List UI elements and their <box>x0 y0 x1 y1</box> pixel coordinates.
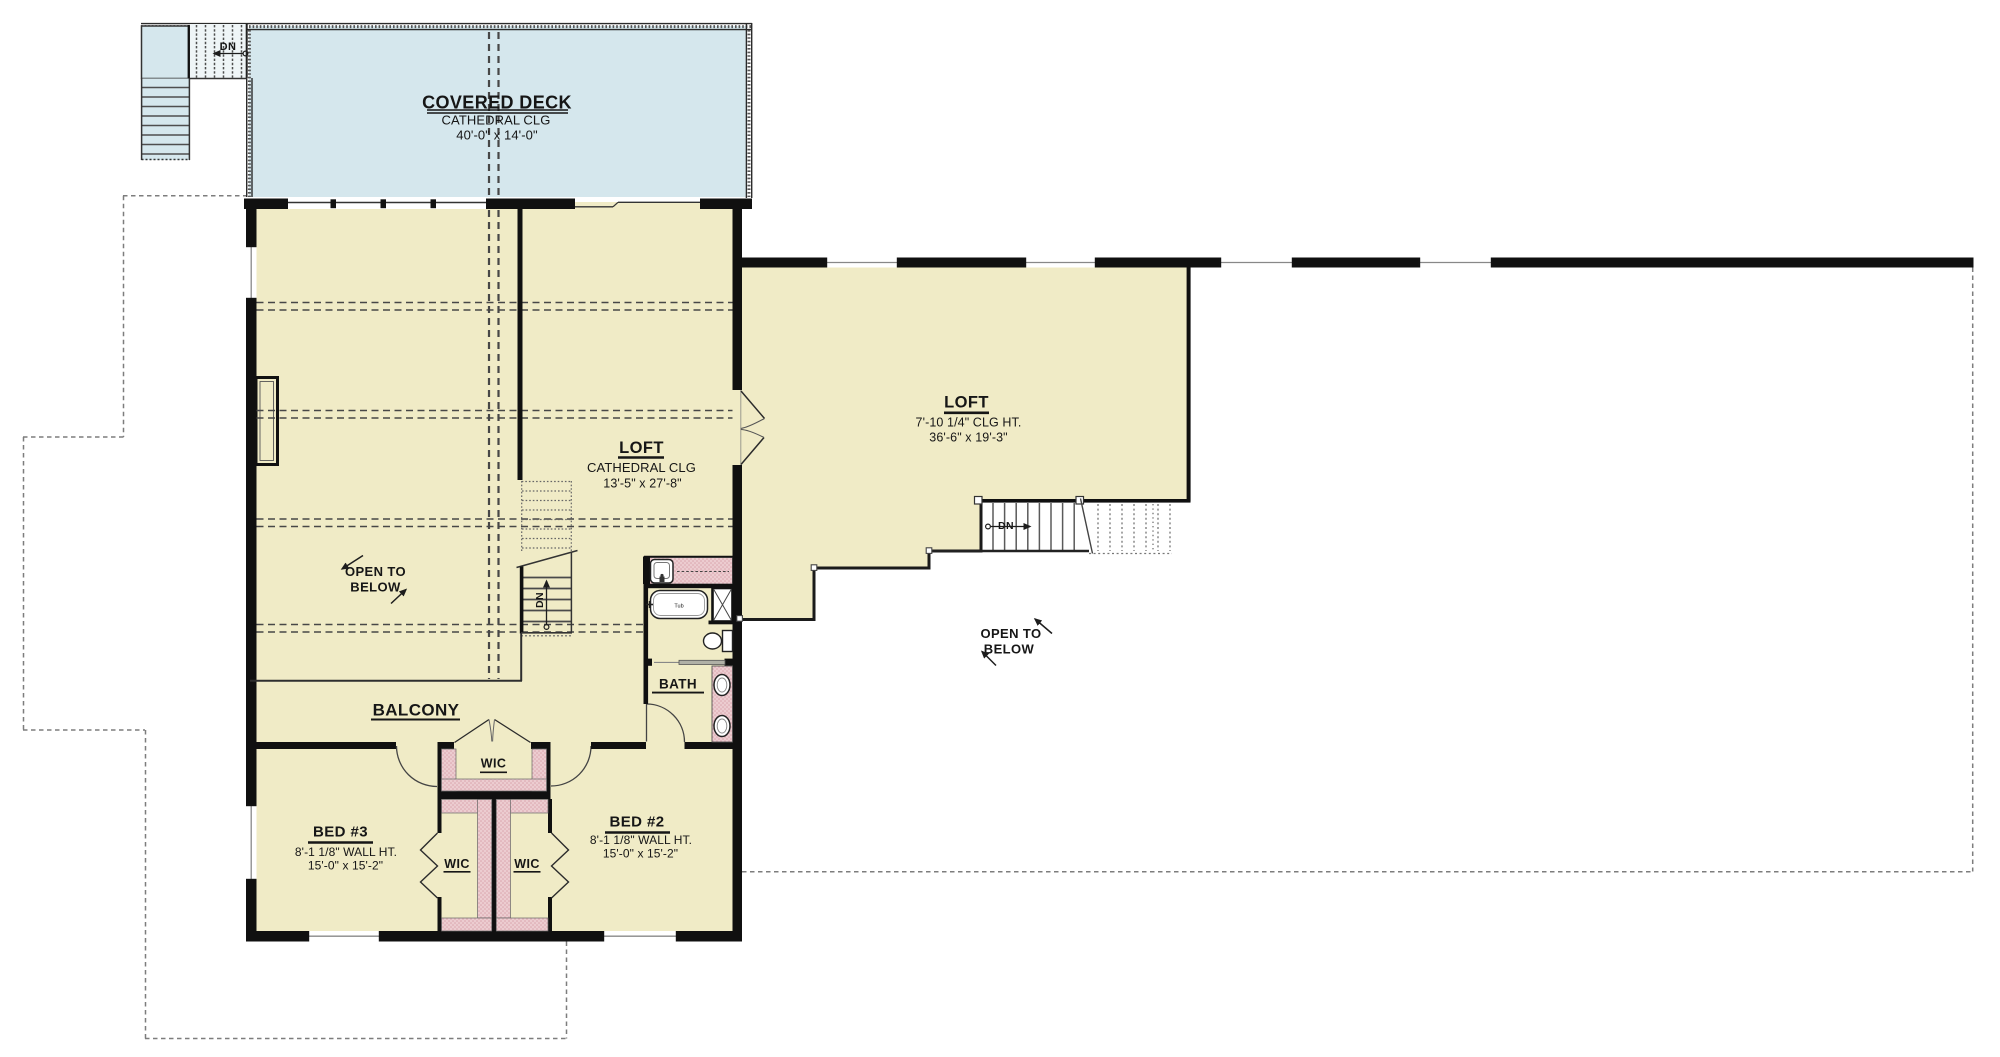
svg-text:13'-5" x 27'-8": 13'-5" x 27'-8" <box>603 477 681 491</box>
svg-text:BATH: BATH <box>659 677 697 692</box>
svg-text:8'-1 1/8" WALL HT.: 8'-1 1/8" WALL HT. <box>590 833 692 847</box>
svg-text:OPEN TO: OPEN TO <box>345 564 406 579</box>
svg-text:7'-10 1/4" CLG HT.: 7'-10 1/4" CLG HT. <box>916 416 1022 430</box>
svg-text:BELOW: BELOW <box>350 580 401 595</box>
svg-text:WIC: WIC <box>444 857 470 871</box>
svg-text:WIC: WIC <box>514 857 540 871</box>
svg-text:OPEN TO: OPEN TO <box>980 626 1041 641</box>
svg-text:DN: DN <box>534 592 546 608</box>
svg-text:BED #2: BED #2 <box>610 814 665 831</box>
svg-text:CATHEDRAL CLG: CATHEDRAL CLG <box>442 113 551 128</box>
svg-text:15'-0" x 15'-2": 15'-0" x 15'-2" <box>603 847 678 861</box>
svg-text:Tub: Tub <box>674 604 683 610</box>
svg-text:LOFT: LOFT <box>619 439 664 457</box>
svg-text:CATHEDRAL CLG: CATHEDRAL CLG <box>587 460 696 475</box>
svg-text:36'-6" x 19'-3": 36'-6" x 19'-3" <box>929 431 1007 445</box>
svg-text:BALCONY: BALCONY <box>373 701 460 720</box>
svg-text:8'-1 1/8" WALL HT.: 8'-1 1/8" WALL HT. <box>295 845 397 859</box>
svg-text:BED #3: BED #3 <box>313 824 368 841</box>
svg-text:40'-0" x 14'-0": 40'-0" x 14'-0" <box>456 128 538 143</box>
svg-text:BELOW: BELOW <box>984 642 1035 657</box>
svg-text:LOFT: LOFT <box>944 394 989 412</box>
svg-text:WIC: WIC <box>481 757 507 771</box>
svg-text:DN: DN <box>220 41 237 53</box>
svg-text:15'-0" x 15'-2": 15'-0" x 15'-2" <box>308 859 383 873</box>
